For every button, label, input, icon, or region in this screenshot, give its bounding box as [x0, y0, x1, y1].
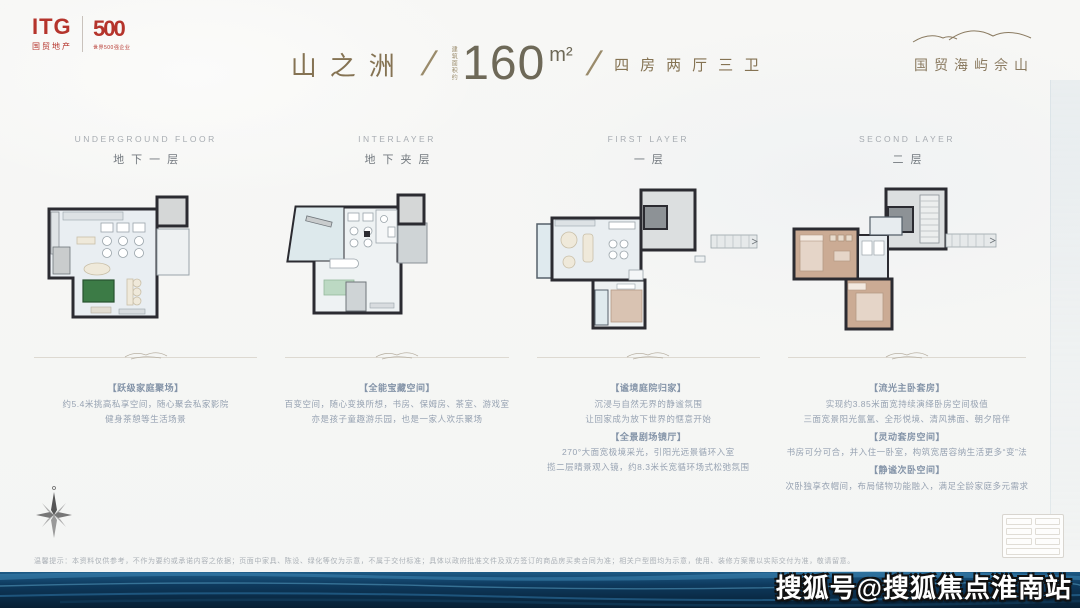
logo-divider — [82, 16, 83, 52]
license-stamp — [1002, 514, 1064, 558]
blurb-heading: 【灵动套房空间】 — [782, 430, 1032, 446]
watermark-text: 搜狐号@搜狐焦点淮南站 — [776, 568, 1072, 605]
section-divider — [537, 357, 760, 369]
floor-label-en: SECOND LAYER — [782, 134, 1032, 144]
title-slash-2: / — [586, 45, 601, 84]
floor-label-cn: 地下夹层 — [279, 151, 514, 167]
floor-label-en: INTERLAYER — [279, 134, 514, 144]
blurb-line: 实现约3.85米面宽持续演绎卧房空间极值 — [782, 397, 1032, 412]
blurb-heading: 【流光主卧套房】 — [782, 381, 1032, 397]
blurb-line: 次卧独享衣帽间，布局储物功能融入，满足全龄家庭多元需求 — [782, 479, 1032, 494]
floorplan-interlayer — [279, 175, 514, 353]
floorplan-underground — [28, 175, 263, 353]
mountain-logo-icon — [909, 35, 1039, 52]
project-logo: 国贸海屿佘山 — [894, 22, 1054, 75]
area-label: 建筑面积约 — [449, 46, 458, 84]
floor-column-first: FIRST LAYER 一层 — [531, 134, 766, 494]
wave-divider-icon — [123, 349, 169, 361]
page-title: 山之洲 / 建筑面积约 160 m² / 四房两厅三卫 — [291, 40, 770, 88]
wave-divider-icon — [884, 349, 930, 361]
right-edge-wash-decor — [1050, 80, 1080, 550]
blurb-line: 健身茶憩等生活场景 — [28, 412, 263, 427]
floor-label-en: UNDERGROUND FLOOR — [28, 134, 263, 144]
blurb-heading: 【谧境庭院归家】 — [531, 381, 766, 397]
wave-divider-icon — [625, 349, 671, 361]
blurb-heading: 【全景剧场镜厅】 — [531, 430, 766, 446]
blurb-line: 亦是孩子童趣游乐园，也是一家人欢乐聚场 — [279, 412, 514, 427]
blurb-line: 约5.4米挑高私享空间，随心聚会私家影院 — [28, 397, 263, 412]
compass-icon — [32, 482, 76, 549]
itg-500-badge: 500 — [93, 18, 130, 40]
section-divider — [788, 357, 1026, 369]
blurb-line: 270°大面宽极境采光，引阳光远景循环入室 — [531, 445, 766, 460]
blurb-line: 揽二层晴景观入镜，约8.3米长宽循环场式松弛氛围 — [531, 460, 766, 475]
floor-label-en: FIRST LAYER — [531, 134, 766, 144]
project-name-text: 国贸海屿佘山 — [894, 55, 1054, 75]
itg-logo-text: ITG — [32, 16, 72, 38]
floorplan-first-layer — [531, 175, 766, 353]
blurb-line: 三面宽景阳光氤氲、全形悦境、清风拂面、朝夕陪伴 — [782, 412, 1032, 427]
floor-label-cn: 二层 — [782, 151, 1032, 167]
area-unit: m² — [549, 44, 572, 67]
title-slash-1: / — [421, 45, 436, 84]
floor-column-second: SECOND LAYER 二层 — [782, 134, 1032, 494]
floor-description: 【流光主卧套房】 实现约3.85米面宽持续演绎卧房空间极值 三面宽景阳光氤氲、全… — [782, 381, 1032, 494]
itg-500-subtext: 世界500强企业 — [93, 44, 130, 51]
floorplan-second-layer — [782, 175, 1032, 353]
itg-brand-logo: ITG 国贸地产 500 世界500强企业 — [32, 16, 130, 52]
blurb-heading: 【静谧次卧空间】 — [782, 463, 1032, 479]
blurb-line: 百变空间，随心变换所想，书房、保姆房、茶室、游戏室 — [279, 397, 514, 412]
floor-description: 【谧境庭院归家】 沉浸与自然无界的静谧氛围 让回家成为放下世界的惬意开始 【全景… — [531, 381, 766, 475]
unit-name: 山之洲 — [291, 46, 408, 83]
blurb-line: 书房可分可合，并入住一卧室，构筑宽居容纳生活更多“变”法 — [782, 445, 1032, 460]
blurb-line: 沉浸与自然无界的静谧氛围 — [531, 397, 766, 412]
blurb-line: 让回家成为放下世界的惬意开始 — [531, 412, 766, 427]
room-layout-label: 四房两厅三卫 — [614, 54, 770, 75]
blurb-heading: 【全能宝藏空间】 — [279, 381, 514, 397]
section-divider — [34, 357, 257, 369]
blurb-heading: 【跃级家庭聚场】 — [28, 381, 263, 397]
wave-divider-icon — [374, 349, 420, 361]
itg-logo-subtext: 国贸地产 — [32, 41, 72, 52]
floor-description: 【全能宝藏空间】 百变空间，随心变换所想，书房、保姆房、茶室、游戏室 亦是孩子童… — [279, 381, 514, 427]
legal-disclaimer: 温馨提示：本资料仅供参考，不作为要约或承诺内容之依据；页面中家具、陈设、绿化等仅… — [34, 556, 1014, 566]
area-value: 160 — [462, 40, 545, 88]
section-divider — [285, 357, 508, 369]
poster-canvas: ITG 国贸地产 500 世界500强企业 山之洲 / 建筑面积约 160 m²… — [0, 0, 1080, 608]
floor-label-cn: 一层 — [531, 151, 766, 167]
floor-column-underground: UNDERGROUND FLOOR 地下一层 — [28, 134, 263, 494]
floor-description: 【跃级家庭聚场】 约5.4米挑高私享空间，随心聚会私家影院 健身茶憩等生活场景 — [28, 381, 263, 427]
floor-column-interlayer: INTERLAYER 地下夹层 — [279, 134, 514, 494]
floor-label-cn: 地下一层 — [28, 151, 263, 167]
floorplan-columns: UNDERGROUND FLOOR 地下一层 — [28, 134, 1032, 494]
